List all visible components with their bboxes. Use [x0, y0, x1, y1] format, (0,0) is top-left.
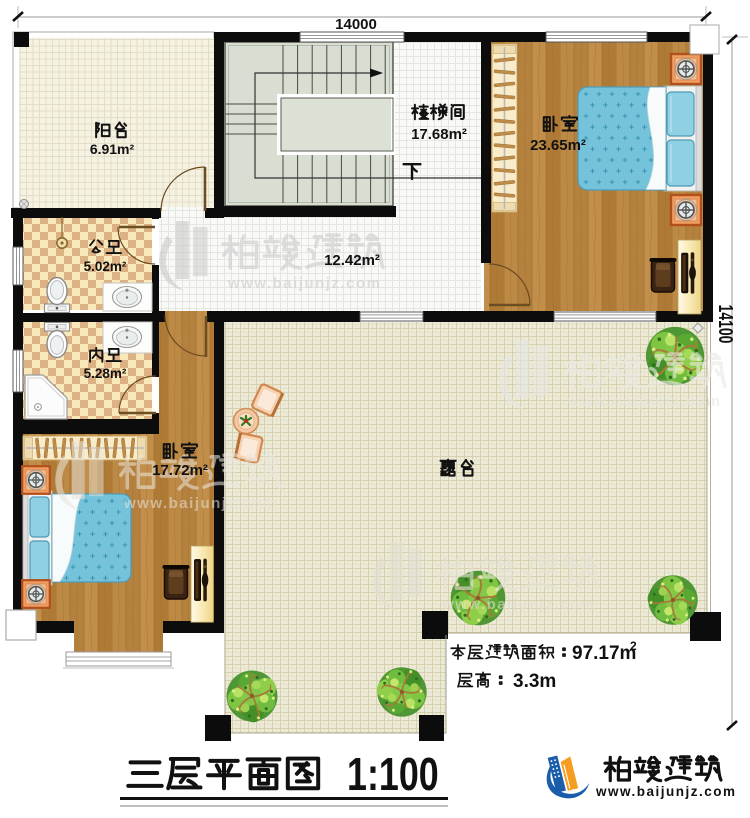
- svg-text:1:100: 1:100: [347, 749, 439, 800]
- svg-text:14000: 14000: [335, 16, 377, 33]
- svg-text:www.baijunjz.com: www.baijunjz.com: [123, 495, 277, 512]
- svg-text:3.3m: 3.3m: [513, 671, 556, 692]
- svg-text:17.68m²: 17.68m²: [411, 126, 467, 143]
- svg-text:5.02m²: 5.02m²: [84, 259, 127, 274]
- svg-text:www.baijunjz.com: www.baijunjz.com: [567, 393, 721, 410]
- svg-text:14100: 14100: [714, 305, 737, 344]
- svg-text:97.17m: 97.17m: [572, 643, 636, 664]
- svg-text:23.65m²: 23.65m²: [530, 137, 586, 154]
- svg-text:www.baijunjz.com: www.baijunjz.com: [227, 275, 381, 292]
- svg-text:17.72m²: 17.72m²: [152, 462, 208, 479]
- svg-text:5.28m²: 5.28m²: [84, 366, 127, 381]
- svg-text:www.baijunjz.com: www.baijunjz.com: [595, 784, 737, 799]
- svg-text:6.91m²: 6.91m²: [90, 141, 135, 157]
- svg-text:12.42m²: 12.42m²: [324, 252, 380, 269]
- svg-text:2: 2: [630, 639, 637, 653]
- svg-text:www.baijunjz.com: www.baijunjz.com: [441, 596, 595, 613]
